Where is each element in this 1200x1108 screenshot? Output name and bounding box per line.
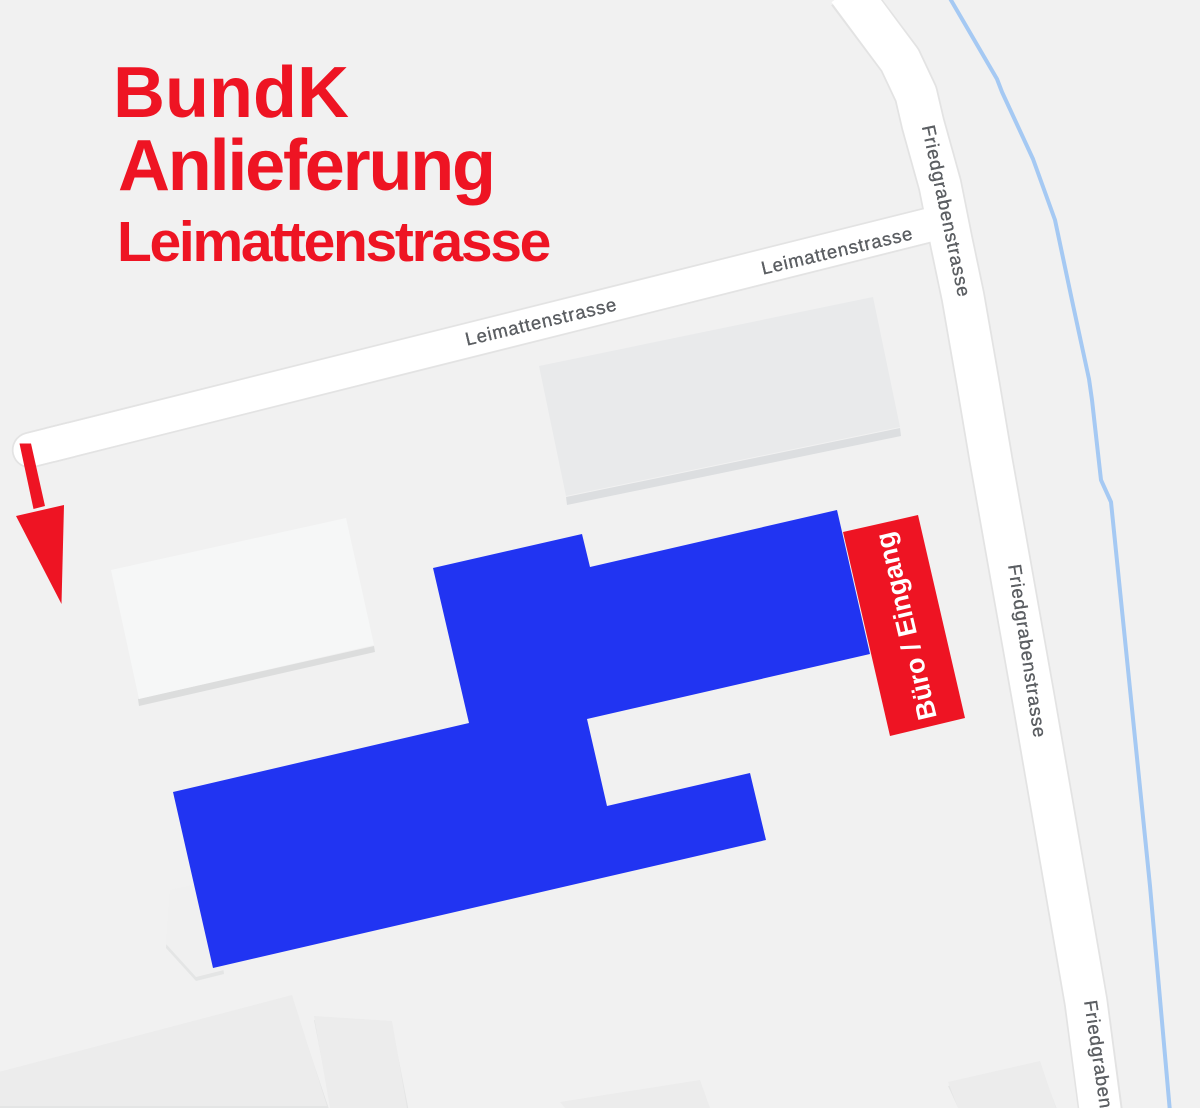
svg-text:Anlieferung: Anlieferung: [118, 126, 494, 206]
svg-text:Leimattenstrasse: Leimattenstrasse: [117, 210, 550, 274]
svg-text:BundK: BundK: [113, 53, 349, 133]
